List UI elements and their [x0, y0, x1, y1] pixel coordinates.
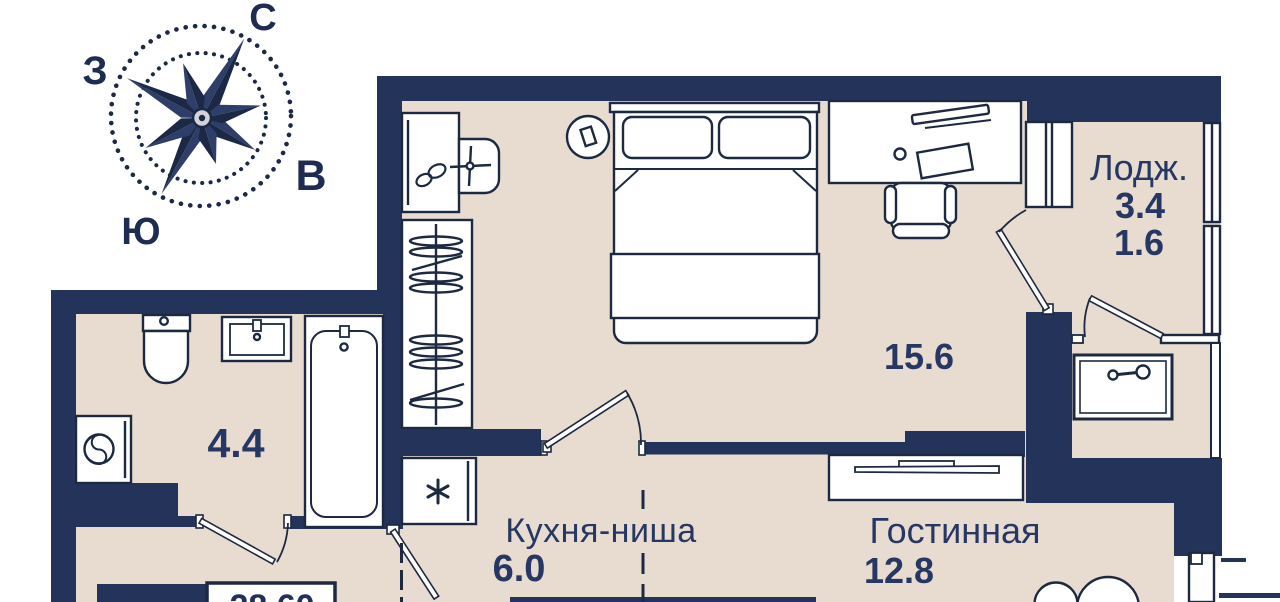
svg-text:4.4: 4.4	[208, 420, 265, 466]
svg-text:6.0: 6.0	[493, 548, 546, 590]
svg-text:15.6: 15.6	[884, 336, 954, 377]
svg-text:З: З	[82, 49, 107, 93]
svg-text:Гостинная: Гостинная	[870, 510, 1041, 551]
svg-text:12.8: 12.8	[864, 550, 934, 591]
svg-text:1.6: 1.6	[1114, 222, 1164, 263]
svg-text:3.4: 3.4	[1115, 185, 1165, 226]
svg-text:С: С	[249, 0, 276, 39]
svg-text:Кухня-ниша: Кухня-ниша	[505, 512, 696, 550]
svg-text:Ю: Ю	[121, 211, 160, 253]
svg-text:28.60: 28.60	[229, 588, 314, 602]
svg-text:Лодж.: Лодж.	[1090, 147, 1188, 188]
svg-text:В: В	[295, 152, 326, 200]
